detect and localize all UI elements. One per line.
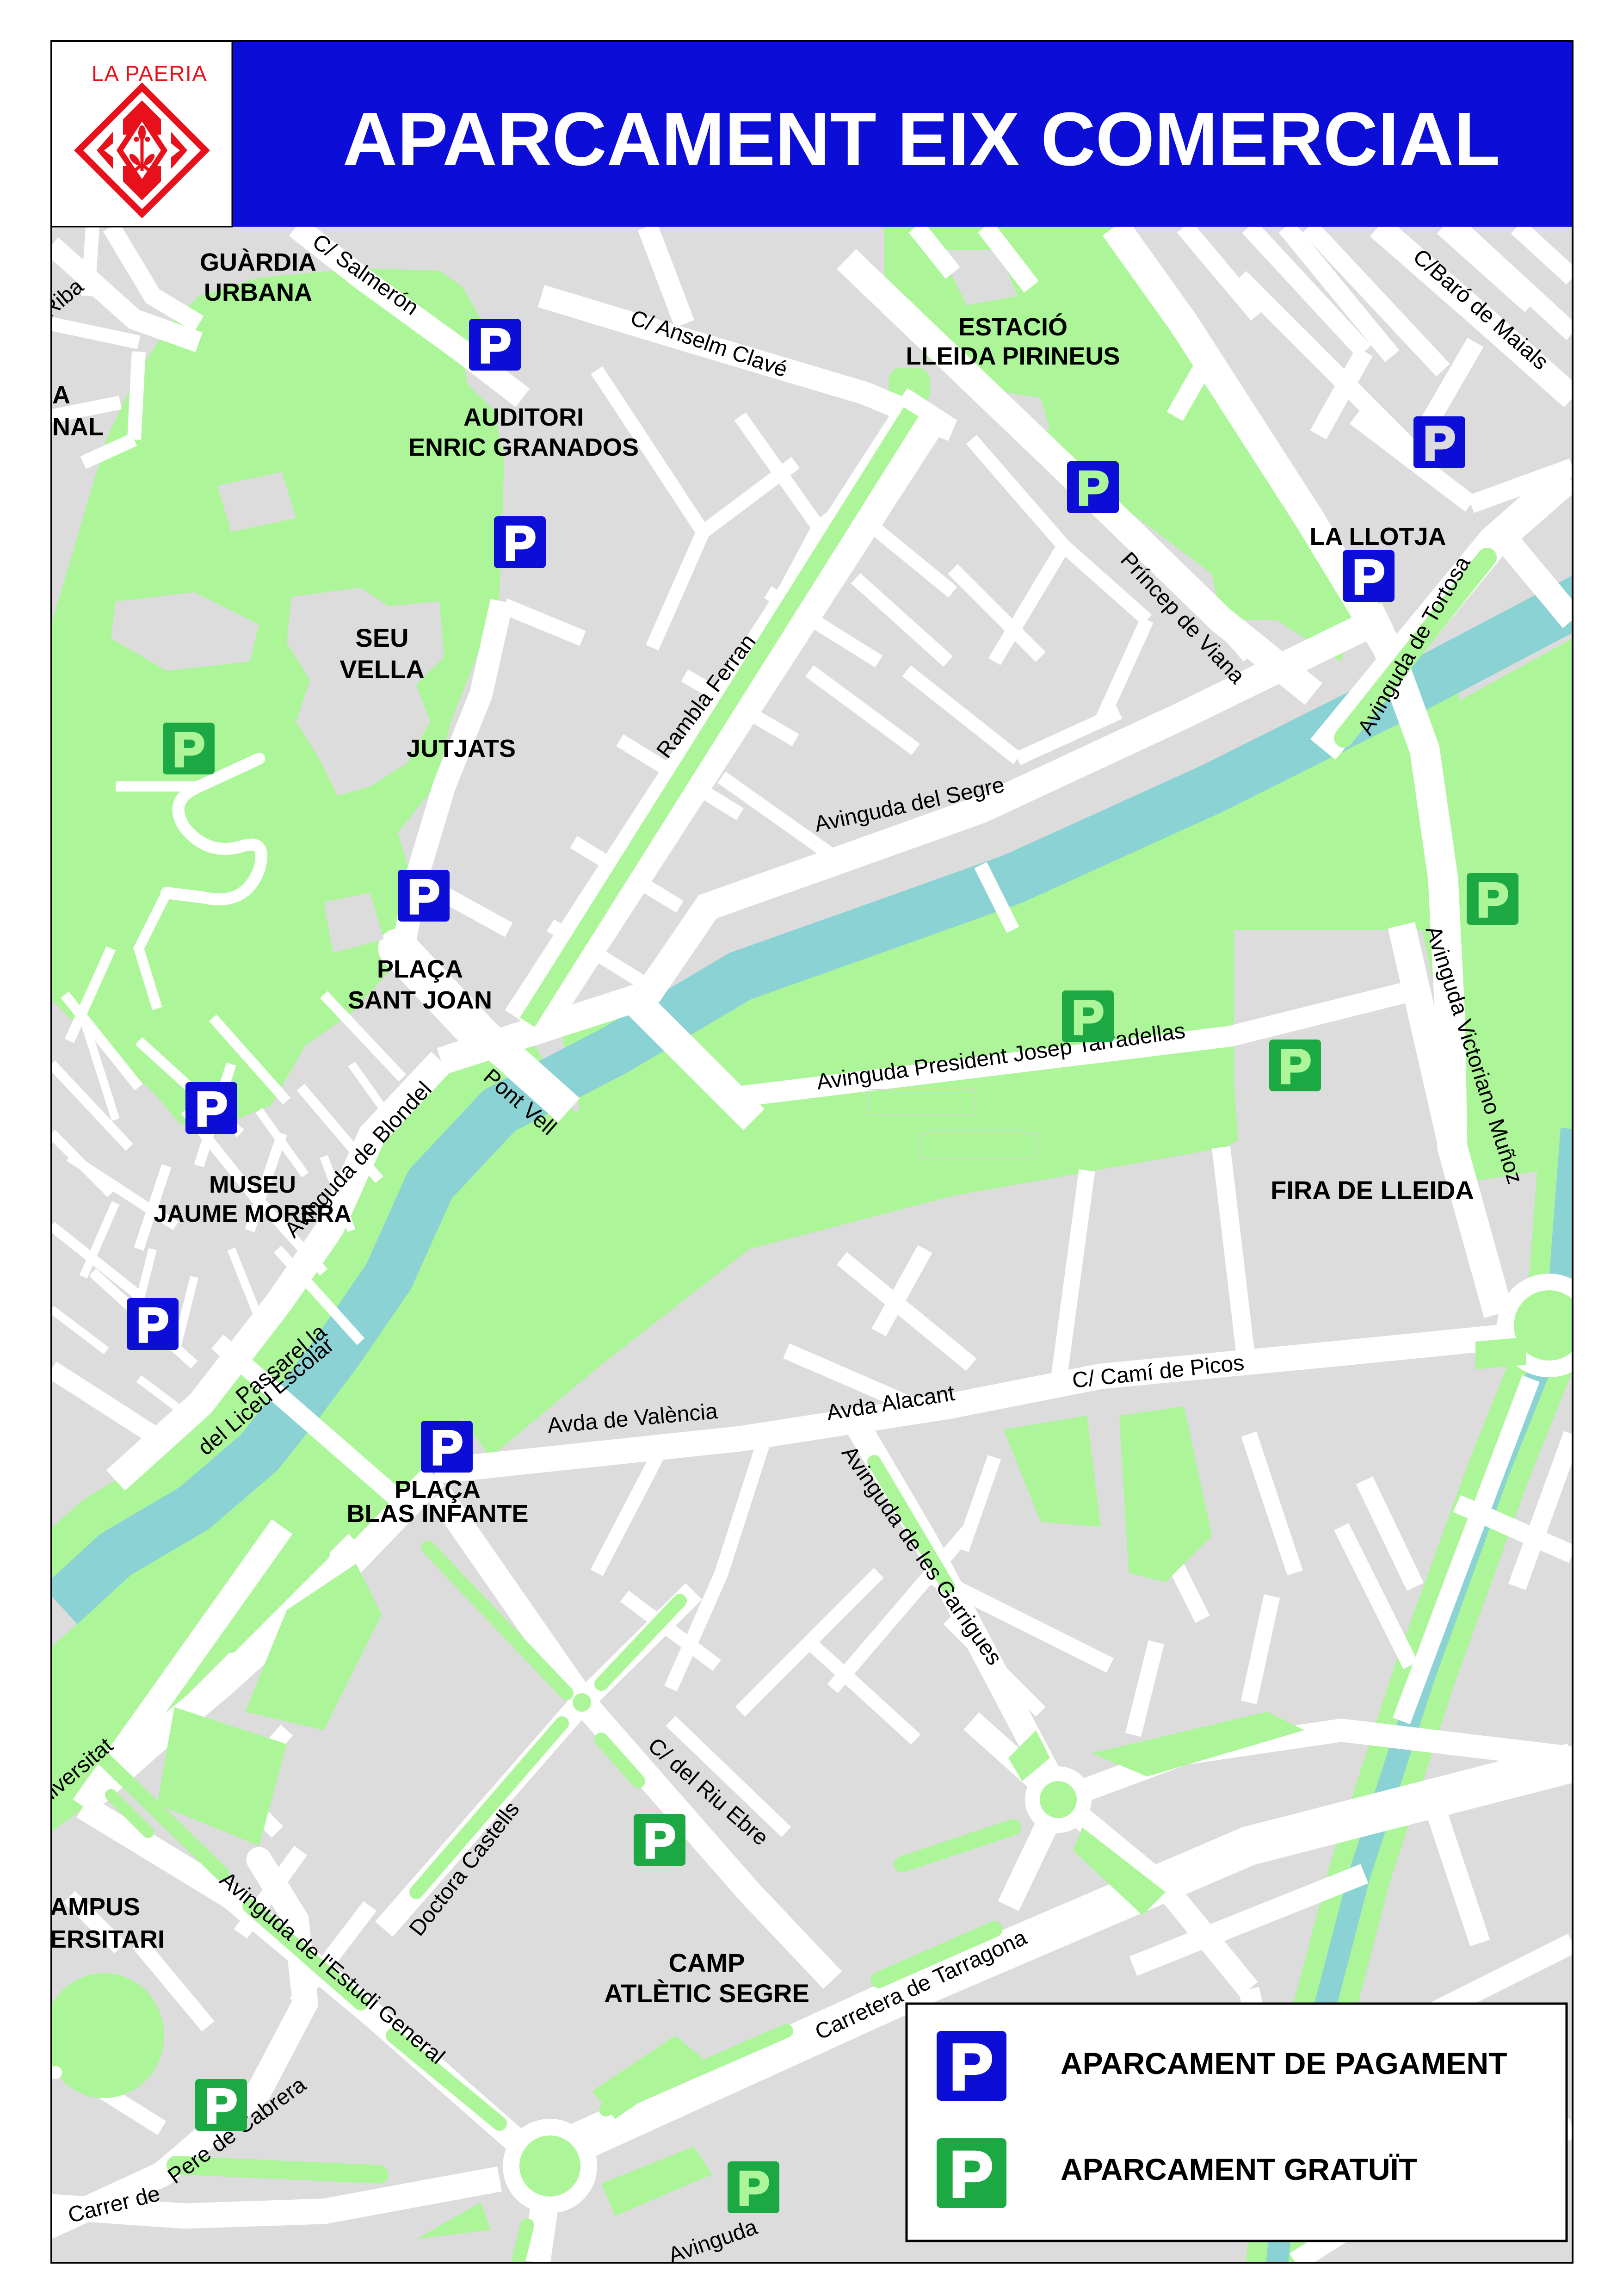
svg-text:PLAÇA: PLAÇA [395, 1476, 481, 1504]
svg-text:JAUME MORERA: JAUME MORERA [154, 1201, 352, 1227]
svg-text:A: A [52, 381, 70, 409]
svg-text:P: P [737, 2162, 769, 2216]
svg-text:LA PAERIA: LA PAERIA [92, 61, 207, 86]
svg-text:P: P [950, 2138, 993, 2210]
svg-text:BLAS INFANTE: BLAS INFANTE [346, 1500, 528, 1528]
svg-text:P: P [950, 2030, 993, 2103]
svg-text:P: P [479, 319, 511, 373]
svg-text:ERSITARI: ERSITARI [50, 1925, 165, 1953]
svg-text:P: P [643, 1814, 675, 1868]
svg-text:FIRA DE LLEIDA: FIRA DE LLEIDA [1271, 1176, 1474, 1205]
svg-text:URBANA: URBANA [204, 278, 312, 306]
svg-text:CAMP: CAMP [669, 1948, 745, 1977]
svg-text:LLEIDA PIRINEUS: LLEIDA PIRINEUS [906, 342, 1120, 370]
svg-text:P: P [431, 1421, 463, 1475]
svg-text:PLAÇA: PLAÇA [377, 955, 463, 983]
svg-text:ATLÈTIC SEGRE: ATLÈTIC SEGRE [604, 1979, 809, 2008]
svg-text:P: P [205, 2079, 237, 2133]
svg-text:ESTACIÓ: ESTACIÓ [958, 313, 1068, 341]
svg-text:NAL: NAL [52, 413, 104, 441]
svg-text:LA LLOTJA: LA LLOTJA [1310, 523, 1446, 551]
svg-text:P: P [504, 517, 536, 570]
svg-text:APARCAMENT EIX COMERCIAL: APARCAMENT EIX COMERCIAL [343, 97, 1500, 181]
svg-text:P: P [1352, 551, 1384, 604]
svg-text:P: P [195, 1083, 227, 1136]
svg-text:P: P [407, 870, 439, 924]
svg-text:APARCAMENT DE PAGAMENT: APARCAMENT DE PAGAMENT [1061, 2046, 1507, 2080]
svg-text:ENRIC GRANADOS: ENRIC GRANADOS [408, 433, 639, 461]
svg-text:SANT JOAN: SANT JOAN [348, 986, 492, 1014]
svg-text:P: P [1279, 1040, 1311, 1094]
svg-text:P: P [1077, 462, 1109, 515]
svg-text:MUSEU: MUSEU [209, 1171, 296, 1198]
svg-text:SEU: SEU [355, 623, 408, 652]
svg-text:P: P [173, 723, 204, 777]
svg-text:AUDITORI: AUDITORI [463, 403, 584, 431]
svg-text:P: P [1476, 873, 1508, 927]
svg-text:P: P [1072, 991, 1104, 1045]
svg-text:AMPUS: AMPUS [50, 1893, 140, 1921]
svg-text:JUTJATS: JUTJATS [407, 735, 516, 762]
svg-text:VELLA: VELLA [339, 655, 425, 684]
svg-text:P: P [1423, 417, 1455, 470]
svg-text:GUÀRDIA: GUÀRDIA [200, 248, 316, 276]
svg-text:P: P [136, 1299, 168, 1352]
svg-text:APARCAMENT GRATUÏT: APARCAMENT GRATUÏT [1061, 2152, 1417, 2186]
